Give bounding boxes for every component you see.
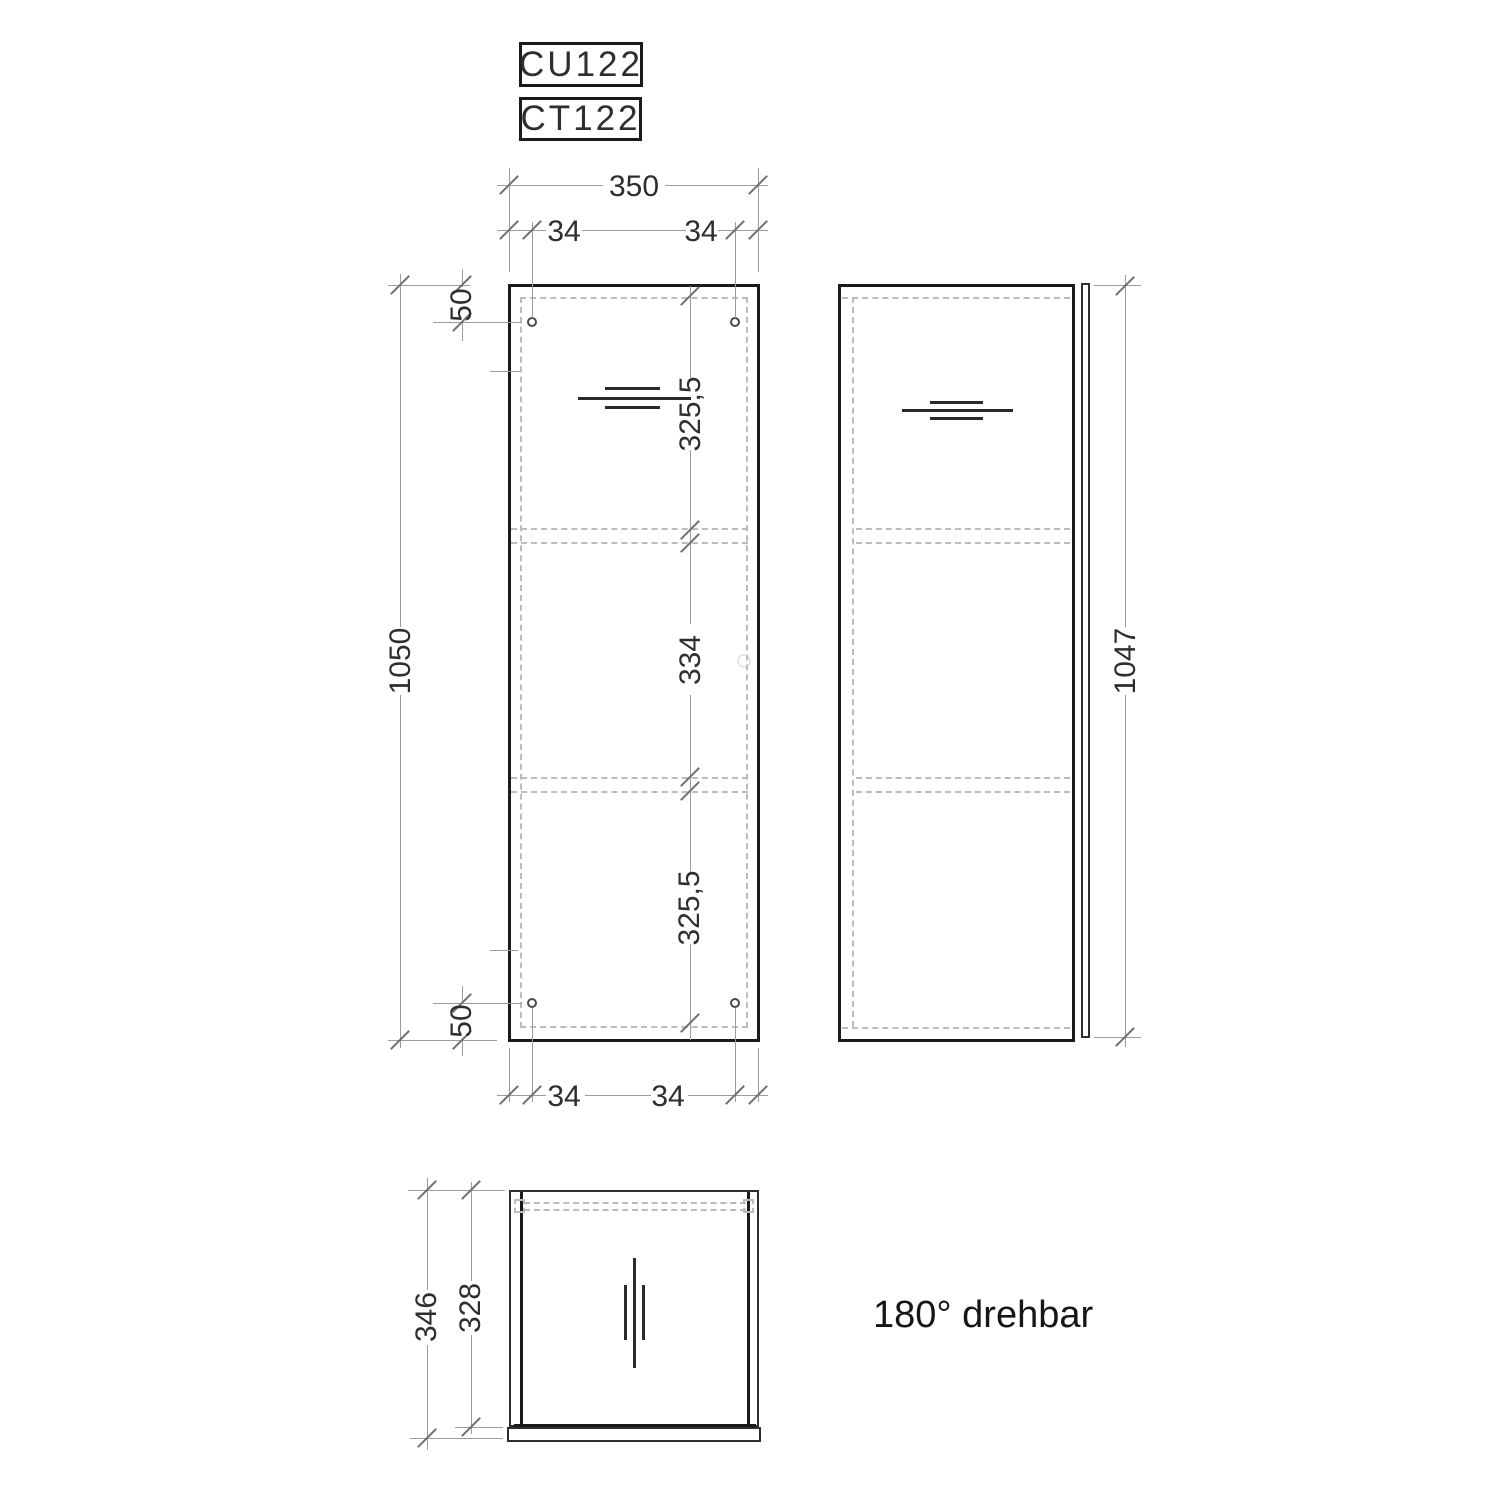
handle-line	[930, 417, 983, 420]
dimension-line	[462, 323, 463, 341]
extension-line	[408, 1190, 505, 1191]
dimension-line	[718, 230, 768, 231]
dimension-line	[690, 695, 691, 872]
mounting-hole	[527, 317, 537, 327]
hidden-line	[852, 297, 854, 1027]
dimension-line	[585, 1095, 651, 1096]
extension-line	[532, 1008, 533, 1102]
dimension-line	[471, 1335, 472, 1434]
dimension-line	[1125, 275, 1126, 627]
side-panel-line	[520, 1192, 523, 1425]
dimension-line	[400, 695, 401, 1048]
dimension-line	[497, 230, 546, 231]
technical-drawing-cabinet: CU122 CT122 350	[0, 0, 1500, 1500]
extension-line	[1094, 1037, 1141, 1038]
dim-section-top: 325,5	[676, 376, 706, 451]
dim-section-bottom: 325,5	[675, 870, 705, 945]
dim-section-middle: 334	[676, 635, 706, 685]
side-door-edge	[1081, 283, 1090, 1038]
dim-depth-inner: 328	[456, 1283, 486, 1333]
dim-hole-inset-top: 50	[447, 288, 477, 321]
dim-hole-inset-bottom-left: 34	[547, 1082, 580, 1112]
dimension-line	[665, 185, 768, 186]
shelf-dashed-line	[511, 542, 748, 544]
handle-line	[930, 401, 983, 404]
mounting-hole	[730, 998, 740, 1008]
side-panel-line	[747, 1192, 750, 1425]
hidden-hook	[743, 1199, 754, 1213]
door-front-strip	[507, 1427, 761, 1442]
shelf-dashed-line	[511, 777, 748, 779]
handle-line	[624, 1285, 627, 1340]
model-code-bottom: CT122	[520, 99, 640, 139]
model-code-box-bottom: CT122	[519, 97, 642, 141]
handle-line	[605, 406, 660, 409]
shelf-dashed-line	[856, 542, 1070, 544]
dimension-line	[497, 1095, 546, 1096]
dim-hole-inset-bottom: 50	[447, 1004, 477, 1037]
dim-height: 1050	[386, 628, 416, 695]
hidden-line	[524, 1202, 746, 1204]
dimension-line	[690, 286, 691, 378]
shelf-dashed-line	[511, 791, 748, 793]
dimension-line	[400, 274, 401, 627]
rotation-note: 180° drehbar	[873, 1294, 1093, 1337]
handle-line	[642, 1285, 645, 1340]
hinge-mark	[738, 655, 751, 668]
extension-line	[455, 1427, 503, 1428]
extension-line	[388, 1040, 497, 1041]
reference-mark	[490, 950, 518, 951]
dim-depth-total: 346	[412, 1292, 442, 1342]
dimension-line	[1125, 695, 1126, 1047]
dimension-line	[497, 185, 603, 186]
reference-mark	[490, 371, 520, 372]
handle-line	[902, 409, 1013, 412]
model-code-top: CU122	[519, 45, 643, 85]
handle-line	[605, 387, 660, 390]
dimension-line	[690, 944, 691, 1040]
dimension-line	[471, 1182, 472, 1281]
shelf-dashed-line	[856, 791, 1070, 793]
shelf-dashed-line	[856, 777, 1070, 779]
shelf-dashed-line	[511, 528, 748, 530]
hidden-line	[524, 1209, 746, 1211]
hidden-line	[842, 1027, 1070, 1029]
dimension-line	[427, 1178, 428, 1290]
extension-line	[735, 1008, 736, 1102]
dimension-line	[690, 450, 691, 624]
extension-line	[735, 222, 736, 318]
extension-line	[1094, 285, 1141, 286]
dim-hole-inset-bottom-right: 34	[651, 1082, 684, 1112]
hidden-line	[842, 297, 1070, 299]
dim-hole-inset-left: 34	[547, 217, 580, 247]
side-outline	[838, 284, 1075, 1042]
dimension-line	[582, 230, 686, 231]
model-code-box-top: CU122	[519, 42, 643, 87]
mounting-hole	[527, 998, 537, 1008]
handle-line	[633, 1258, 636, 1368]
dim-width: 350	[609, 172, 659, 202]
extension-line	[532, 222, 533, 318]
shelf-dashed-line	[856, 528, 1070, 530]
mounting-hole	[730, 317, 740, 327]
hidden-hook	[514, 1199, 525, 1213]
extension-line	[433, 322, 522, 323]
dim-hole-inset-right: 34	[684, 217, 717, 247]
dim-side-height: 1047	[1111, 628, 1141, 695]
